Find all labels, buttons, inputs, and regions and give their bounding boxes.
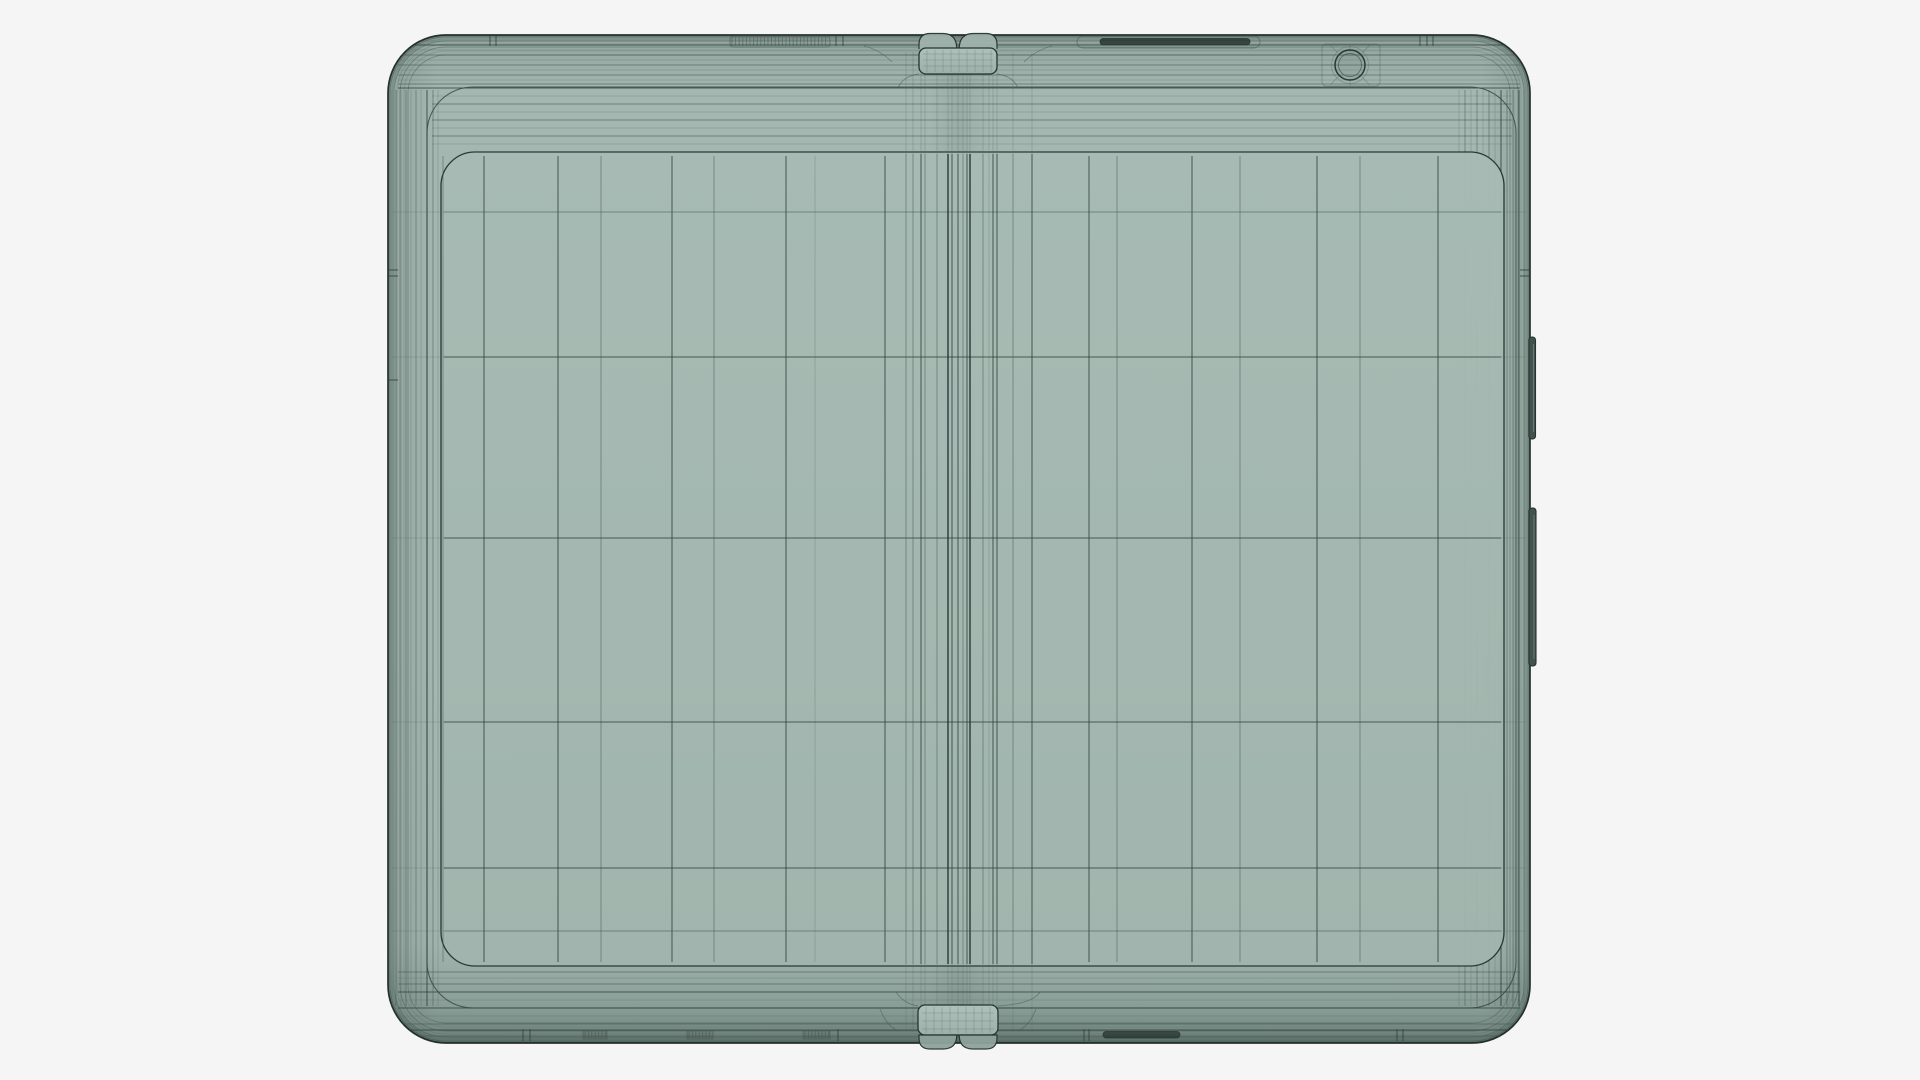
- power-button: [1529, 337, 1536, 439]
- render-viewport: [0, 0, 1920, 1080]
- wireframe-foldable-phone-render: [0, 0, 1920, 1080]
- top-speaker-slot: [1100, 39, 1250, 46]
- volume-button: [1529, 508, 1536, 666]
- inner-display: [441, 152, 1504, 966]
- bottom-speaker-slot: [1103, 1032, 1180, 1039]
